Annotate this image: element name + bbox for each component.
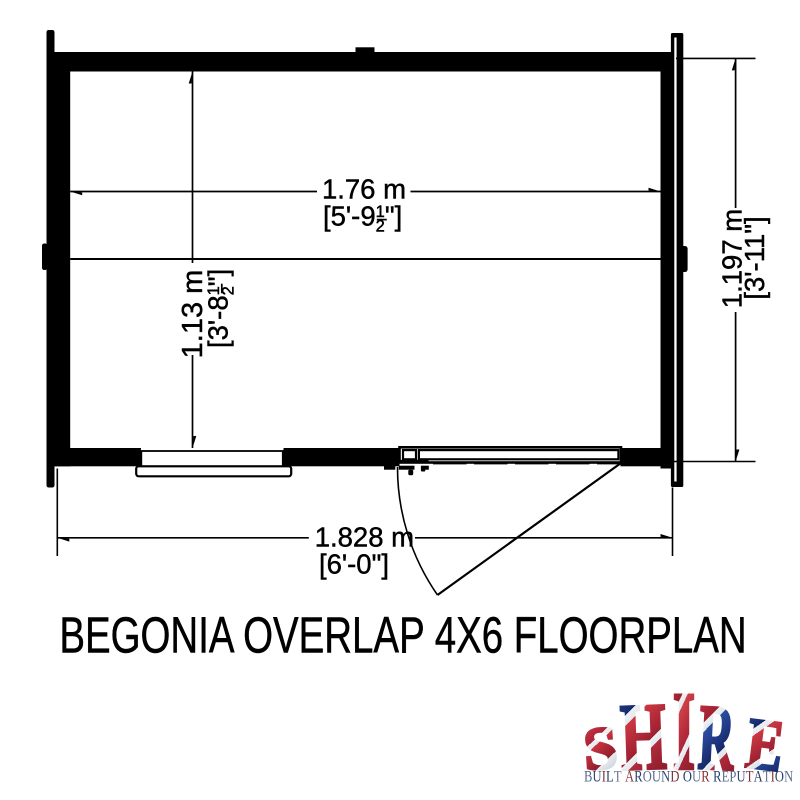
svg-text:[6'-0"]: [6'-0"] [319,549,389,580]
svg-text:[5'-912"]: [5'-912"] [323,201,402,236]
svg-text:[3'-812"]: [3'-812"] [203,269,238,348]
svg-text:[3'-11"]: [3'-11"] [739,216,770,299]
svg-text:BEGONIA OVERLAP 4X6 FLOORPLAN: BEGONIA OVERLAP 4X6 FLOORPLAN [59,606,746,664]
svg-text:BUILT AROUND OUR REPUTATION: BUILT AROUND OUR REPUTATION [584,768,794,786]
